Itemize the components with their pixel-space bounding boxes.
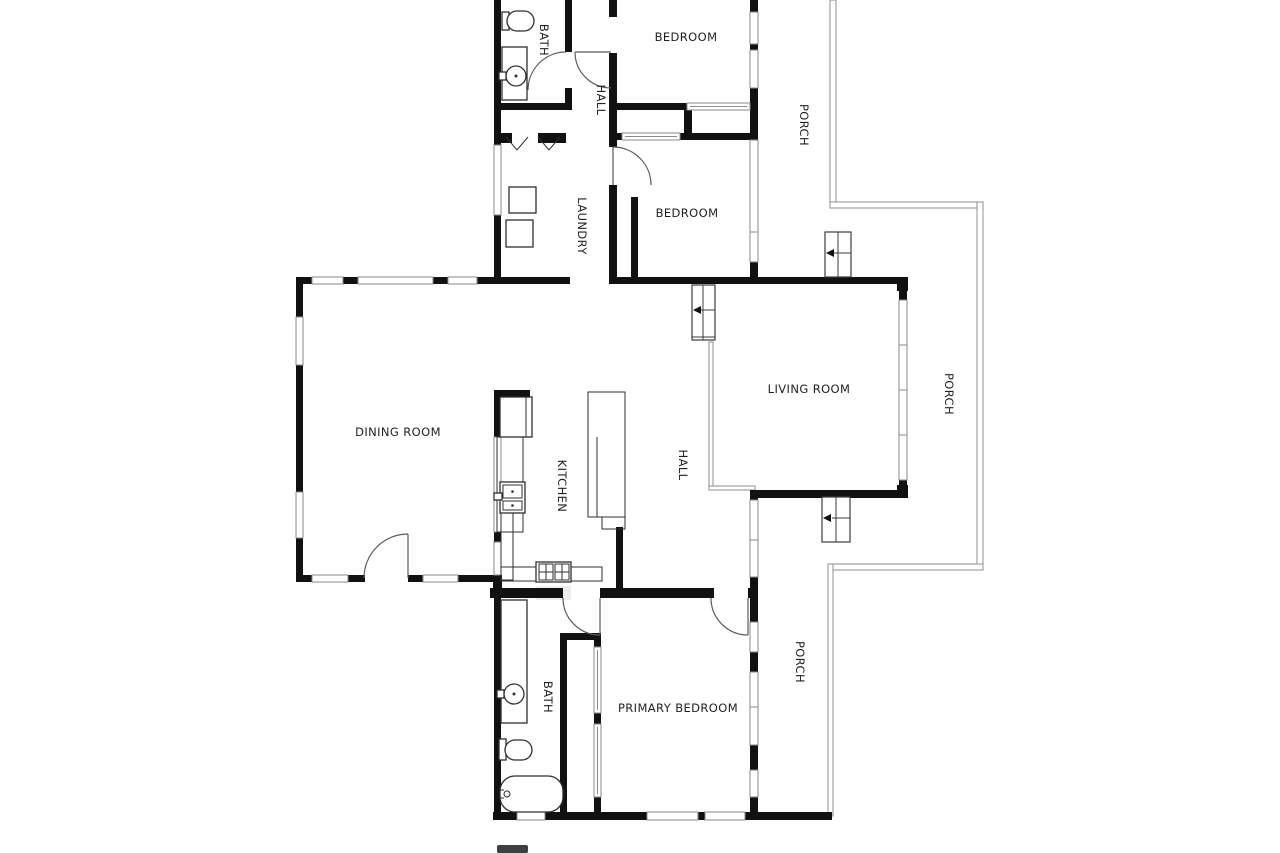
porch-steps-upper	[825, 232, 851, 277]
bedroom-top-door	[575, 52, 611, 88]
room-label-kitchen: KITCHEN	[555, 460, 569, 513]
front-door	[364, 534, 408, 578]
room-label-bath-top: BATH	[537, 24, 551, 56]
room-labels: BATH HALL BEDROOM PORCH LAUNDRY BEDROOM …	[355, 24, 956, 715]
fixtures	[494, 11, 625, 812]
floor-plan-canvas: BATH HALL BEDROOM PORCH LAUNDRY BEDROOM …	[0, 0, 1280, 853]
vanity-sink-fixture-top	[499, 47, 527, 100]
windows	[296, 12, 907, 820]
refrigerator-fixture	[500, 397, 532, 437]
primary-bedroom-door	[711, 598, 748, 635]
walls	[296, 0, 908, 820]
porch-steps-right	[822, 497, 850, 542]
room-label-hall-center: HALL	[676, 450, 690, 481]
toilet-fixture-bottom	[499, 739, 532, 760]
washer-dryer-fixtures	[506, 187, 536, 247]
toilet-fixture-top	[502, 11, 534, 31]
room-label-bedroom-middle: BEDROOM	[656, 206, 719, 220]
room-label-porch-top: PORCH	[797, 104, 811, 146]
bath-bottom-door	[563, 598, 600, 635]
bathtub-fixture	[500, 776, 563, 812]
room-label-primary-bedroom: PRIMARY BEDROOM	[618, 701, 738, 715]
room-label-bedroom-top: BEDROOM	[655, 30, 718, 44]
room-label-bath-bottom: BATH	[541, 681, 555, 713]
cropped-bottom-element	[497, 845, 528, 853]
living-room-level-change-line	[709, 342, 755, 490]
room-label-living-room: LIVING ROOM	[768, 382, 851, 396]
vanity-sink-fixture-bottom	[497, 600, 527, 723]
room-label-porch-bottom: PORCH	[793, 641, 807, 683]
room-label-hall-top: HALL	[594, 85, 608, 116]
room-label-dining-room: DINING ROOM	[355, 425, 441, 439]
bath-top-door	[528, 52, 566, 90]
stove-fixture	[536, 562, 571, 600]
room-label-laundry: LAUNDRY	[575, 197, 589, 255]
stove-reflection	[536, 586, 571, 600]
room-label-porch-right: PORCH	[942, 373, 956, 415]
bedroom-middle-door	[613, 147, 651, 185]
kitchen-peninsula-counter	[588, 392, 625, 529]
hall-steps	[692, 285, 715, 340]
